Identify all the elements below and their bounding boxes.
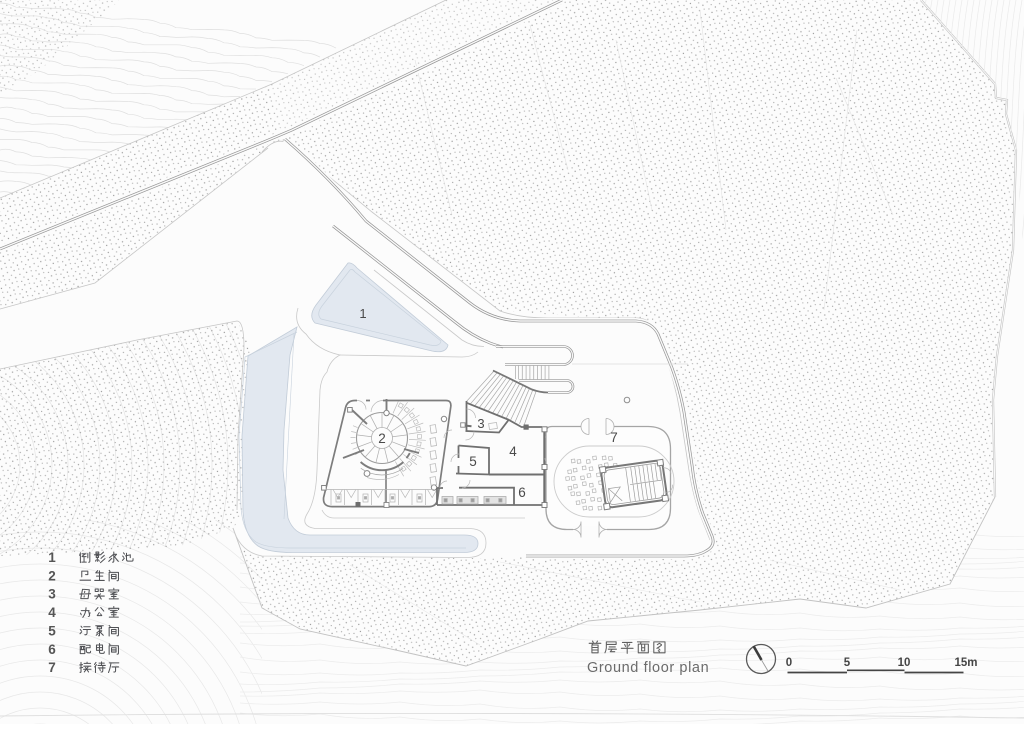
svg-text:2: 2	[378, 431, 386, 446]
svg-text:10: 10	[898, 657, 911, 669]
svg-text:4: 4	[509, 444, 517, 459]
svg-text:2: 2	[48, 568, 56, 583]
svg-text:Ground floor plan: Ground floor plan	[587, 660, 709, 676]
svg-text:1: 1	[359, 306, 366, 321]
svg-text:7: 7	[48, 660, 56, 675]
svg-text:15m: 15m	[954, 657, 977, 669]
svg-text:1: 1	[48, 550, 56, 565]
svg-text:6: 6	[48, 642, 56, 657]
svg-text:0: 0	[786, 657, 792, 669]
svg-text:7: 7	[610, 430, 618, 445]
svg-text:3: 3	[477, 416, 484, 431]
svg-text:4: 4	[48, 605, 56, 620]
svg-text:3: 3	[48, 587, 56, 602]
svg-text:5: 5	[469, 454, 477, 469]
svg-text:5: 5	[844, 657, 851, 669]
svg-text:6: 6	[518, 485, 526, 500]
svg-text:5: 5	[48, 623, 56, 638]
